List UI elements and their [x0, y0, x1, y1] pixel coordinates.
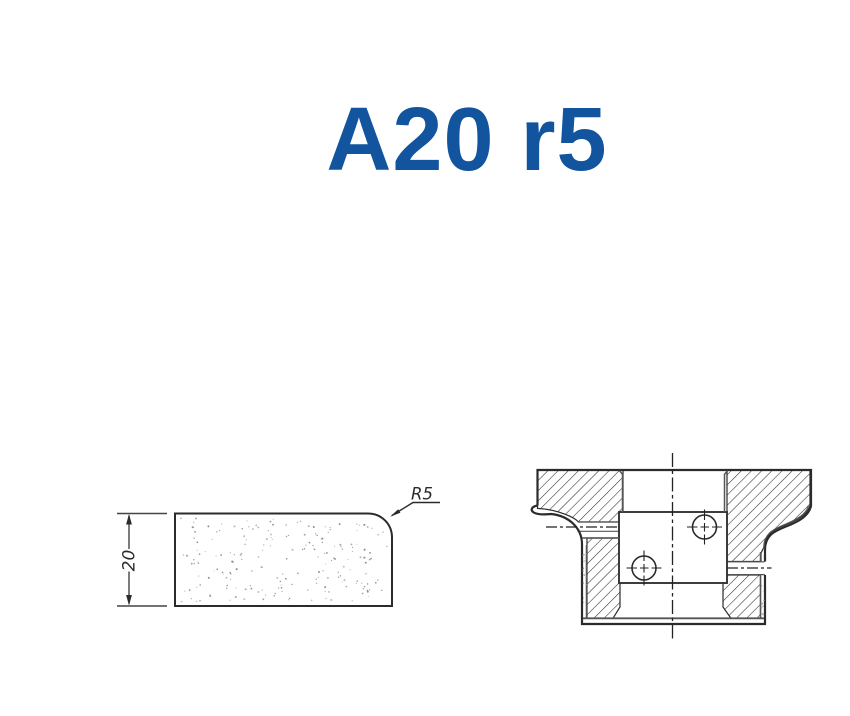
grit-dot [219, 530, 220, 531]
grit-dot [199, 584, 201, 586]
grit-dot [316, 583, 318, 585]
grit-dot [289, 598, 290, 599]
grit-dot [246, 520, 247, 521]
grit-dot [257, 526, 259, 528]
grit-dot [339, 523, 341, 525]
grit-dot [229, 572, 231, 574]
grit-dot [367, 583, 368, 584]
grit-dot [761, 607, 763, 609]
grit-dot [340, 546, 342, 548]
dimension-20-label: 20 [120, 550, 140, 572]
grit-dot [369, 589, 370, 590]
section-view-drawing [532, 453, 811, 641]
grit-dot [761, 585, 762, 586]
grit-dot [382, 532, 383, 533]
grit-dot [286, 558, 288, 560]
grit-dot [208, 577, 210, 579]
grit-dot [195, 517, 197, 519]
grit-dot [334, 546, 335, 547]
grit-dot [583, 554, 584, 555]
grit-dot [324, 586, 326, 588]
grit-dot [196, 601, 197, 602]
grit-dot [268, 530, 269, 531]
grit-dot [270, 533, 272, 535]
grit-dot [369, 552, 371, 554]
grit-dot [762, 614, 764, 616]
grit-dot [318, 577, 319, 578]
grit-dot [221, 524, 222, 525]
grit-dot [272, 539, 273, 540]
grit-dot [352, 600, 353, 601]
grit-dot [276, 577, 278, 579]
grit-dot [350, 569, 351, 570]
grit-dot [361, 583, 362, 584]
grit-dot [386, 546, 387, 547]
grit-dot [189, 589, 191, 591]
grit-dot [315, 533, 316, 534]
grit-dot [257, 591, 259, 593]
grit-dot [300, 521, 301, 522]
grit-dot [266, 538, 268, 540]
grit-dot [280, 581, 281, 582]
hub-section-left [587, 538, 620, 618]
grit-dot [367, 526, 369, 528]
grit-dot [236, 568, 238, 570]
grit-dot [318, 571, 320, 573]
grit-dot [356, 523, 358, 525]
grit-dot [245, 588, 247, 590]
grit-dot [365, 573, 366, 574]
grit-dot [343, 566, 345, 568]
grit-dot [377, 579, 378, 580]
grit-dot [251, 570, 253, 572]
grit-dot [356, 530, 357, 531]
technical-drawing-canvas: 20 R5 [0, 0, 850, 716]
grit-dot [226, 585, 228, 587]
grit-dot [229, 600, 230, 601]
grit-dot [314, 548, 316, 550]
grit-dot [585, 567, 586, 568]
grit-dot [763, 591, 764, 592]
grit-dot [309, 542, 311, 544]
grit-dot [192, 527, 193, 528]
grit-dot [334, 558, 336, 560]
grit-dot [363, 588, 364, 589]
grit-dot [252, 528, 254, 530]
grit-dot [359, 525, 360, 526]
grit-dot [281, 591, 283, 593]
grit-dot [181, 601, 183, 603]
grit-dot [367, 591, 369, 593]
grit-dot [271, 537, 272, 538]
grit-dot [191, 563, 193, 565]
grit-dot [246, 539, 247, 540]
grit-dot [338, 577, 339, 578]
grit-dot [291, 549, 293, 551]
grit-dot [191, 598, 192, 599]
grit-dot [273, 519, 274, 520]
grit-dot [585, 576, 586, 577]
grit-dot [180, 518, 181, 519]
grit-dot [304, 548, 306, 550]
grit-dot [242, 528, 243, 529]
grit-dot [186, 555, 188, 557]
grit-dot [341, 548, 343, 550]
grit-dot [215, 555, 216, 556]
grit-dot [325, 526, 326, 527]
grit-dot [311, 600, 312, 601]
grit-dot [363, 557, 365, 559]
grit-dot [585, 584, 587, 586]
grit-dot [331, 560, 332, 561]
grit-dot [223, 574, 224, 575]
grit-dot [193, 563, 195, 565]
grit-dot [377, 534, 379, 536]
grit-dot [338, 572, 339, 573]
grit-dot [583, 602, 584, 603]
grit-dot [762, 603, 764, 605]
grit-dot [216, 531, 218, 533]
grit-dot [258, 556, 259, 557]
grit-dot [302, 549, 303, 550]
grit-dot [583, 567, 585, 569]
grit-dot [265, 595, 266, 596]
grit-dot [222, 572, 224, 574]
grit-dot [325, 591, 326, 592]
grit-dot [214, 570, 215, 571]
grit-dot [363, 524, 365, 526]
radius-label: R5 [411, 485, 433, 504]
grit-dot [263, 544, 264, 545]
grit-dot [183, 554, 185, 556]
hub-section-right [723, 575, 761, 618]
grit-dot [342, 581, 343, 582]
grit-dot [197, 550, 198, 551]
grit-dot [362, 593, 364, 595]
grit-dot [212, 539, 213, 540]
grit-dot [322, 542, 323, 543]
grit-dot [240, 554, 242, 556]
grit-dot [356, 544, 357, 545]
profile-body-outline [175, 514, 392, 607]
grit-dot [197, 562, 198, 563]
grit-dot [251, 588, 253, 590]
grit-dot [231, 561, 233, 563]
grit-dot [356, 580, 358, 582]
grit-dot [324, 553, 325, 554]
grit-dot [762, 606, 763, 607]
grit-dot [763, 600, 765, 602]
dimension-20: 20 [117, 514, 167, 607]
grit-dot [243, 535, 244, 536]
grit-dot [281, 584, 282, 585]
grit-dot [346, 586, 348, 588]
grit-dot [205, 551, 206, 552]
grit-dot [583, 561, 584, 562]
grit-dot [234, 554, 235, 555]
grit-dot [194, 531, 196, 533]
grit-dot [235, 587, 236, 588]
grit-dot [282, 573, 283, 574]
grit-dot [230, 552, 231, 553]
grit-dot [368, 596, 369, 597]
grit-dot [762, 602, 763, 603]
grit-dot [360, 556, 362, 558]
grit-dot [584, 558, 585, 559]
grit-dot [307, 589, 309, 591]
grit-dot [281, 587, 283, 589]
grit-dot [288, 535, 289, 536]
arrowhead-up-icon [126, 514, 132, 525]
grit-dot [352, 551, 353, 552]
grit-dot [340, 575, 341, 576]
grit-dot [193, 522, 194, 523]
grit-dot [248, 526, 249, 527]
grit-dot [196, 587, 197, 588]
grit-dot [230, 573, 231, 574]
grit-dot [184, 591, 185, 592]
leader-line [392, 503, 440, 516]
grit-dot [343, 579, 345, 581]
grit-dot [226, 588, 228, 590]
grit-dot [278, 587, 280, 589]
grit-dot [233, 525, 235, 527]
grit-dot [583, 583, 584, 584]
grit-dot [256, 525, 257, 526]
grit-dot [582, 570, 583, 571]
grit-dot [352, 547, 353, 548]
grit-dot [207, 525, 209, 527]
grit-dot [583, 597, 584, 598]
grit-dot [288, 599, 289, 600]
grit-dot [273, 595, 274, 596]
grit-dot [262, 589, 263, 590]
grit-dot [316, 535, 317, 536]
grit-dot [308, 525, 310, 527]
grit-dot [328, 591, 330, 593]
grit-dot [216, 568, 218, 570]
grit-dot [330, 599, 332, 601]
grit-dot [364, 549, 366, 551]
grit-dot [193, 559, 194, 560]
grit-dot [316, 579, 317, 580]
grit-dot [351, 544, 353, 546]
grit-dot [199, 553, 201, 555]
grit-dot [244, 544, 246, 546]
grit-dot [198, 563, 199, 564]
grit-dot [330, 529, 332, 531]
grit-dot [225, 577, 227, 579]
grit-dot [196, 541, 198, 543]
grit-dot [339, 544, 341, 546]
leader-arrowhead-icon [390, 509, 400, 517]
arrowhead-down-icon [126, 595, 132, 606]
grit-dot [297, 573, 299, 575]
grit-dot [209, 595, 211, 597]
grit-dot [330, 527, 331, 528]
grit-dot [326, 552, 328, 554]
grit-dot [243, 598, 245, 600]
grit-dot [364, 586, 366, 588]
grit-dot [286, 536, 288, 538]
grit-dot [322, 570, 324, 572]
grit-dot [348, 559, 349, 560]
grit-dot [371, 528, 372, 529]
flange-section-right [727, 470, 810, 562]
grit-dot [312, 545, 313, 546]
grit-dot [583, 574, 585, 576]
grit-dot [297, 522, 298, 523]
grit-dot [241, 559, 243, 561]
grit-dot [262, 598, 264, 600]
grit-dot [193, 537, 194, 538]
grit-dot [365, 562, 367, 564]
grit-dot [235, 596, 237, 598]
grit-dot [261, 566, 263, 568]
grit-dot [327, 577, 329, 579]
grit-dot [272, 524, 274, 526]
grit-dot [304, 534, 306, 536]
grit-dot [585, 553, 586, 554]
grit-dot [285, 524, 287, 526]
grit-dot [274, 593, 276, 595]
grit-dot [313, 526, 315, 528]
grit-dot [328, 532, 329, 533]
grit-dot [285, 578, 287, 580]
grit-dot [250, 585, 251, 586]
grit-dot [375, 582, 377, 584]
grit-dot [199, 600, 201, 602]
radius-callout: R5 [390, 485, 440, 517]
grit-dot [321, 538, 323, 540]
grit-dot [269, 521, 271, 523]
grit-dot [305, 545, 306, 546]
grit-dot [220, 554, 222, 556]
grit-dot [356, 583, 357, 584]
grit-dot [381, 590, 382, 591]
grit-dot [198, 576, 199, 577]
grit-dot [366, 573, 367, 574]
profile-view-drawing: 20 R5 [117, 485, 440, 607]
grit-dot [370, 558, 372, 560]
grit-dot [325, 598, 326, 599]
grit-dot [317, 556, 318, 557]
grit-dot [291, 584, 292, 585]
grit-dot [325, 564, 326, 565]
grit-dot [262, 550, 263, 551]
grit-dot [230, 579, 231, 580]
grit-dot [270, 545, 271, 546]
